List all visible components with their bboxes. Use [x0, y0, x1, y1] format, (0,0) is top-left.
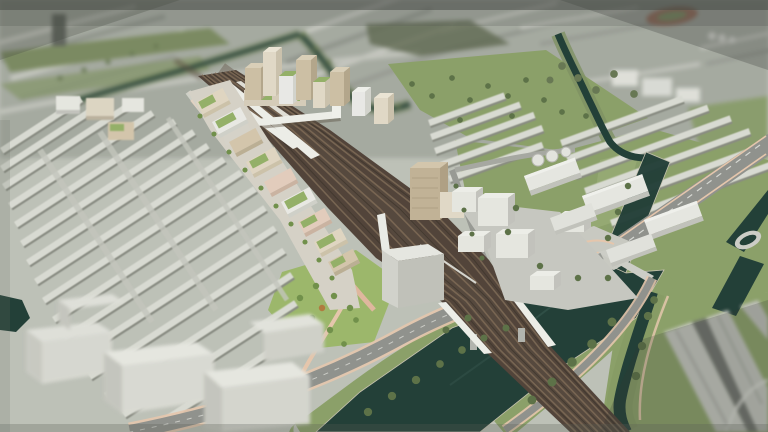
render-canvas [0, 0, 768, 432]
vignette [0, 0, 768, 432]
masterplan-render [0, 0, 768, 432]
